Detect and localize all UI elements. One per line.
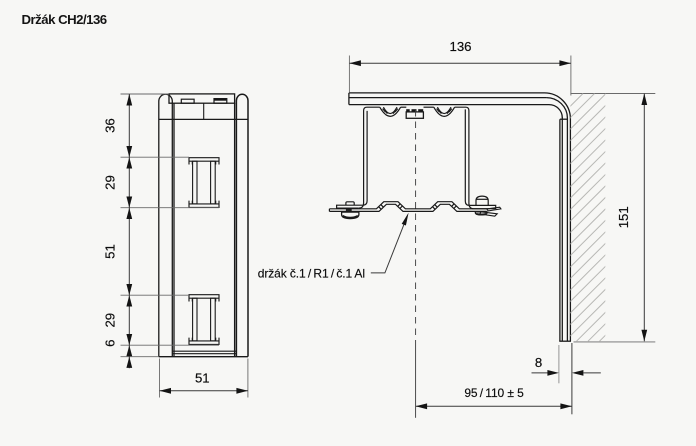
- svg-text:36: 36: [103, 118, 118, 133]
- svg-text:29: 29: [103, 313, 118, 328]
- svg-text:6: 6: [103, 340, 118, 347]
- svg-text:151: 151: [616, 206, 631, 228]
- svg-text:držák č.1 / R1 / č.1 Al: držák č.1 / R1 / č.1 Al: [258, 267, 365, 281]
- svg-text:8: 8: [535, 355, 542, 370]
- svg-text:95 / 110 ± 5: 95 / 110 ± 5: [464, 386, 524, 400]
- svg-text:51: 51: [103, 244, 118, 259]
- svg-text:29: 29: [103, 175, 118, 190]
- svg-text:Držák CH2/136: Držák CH2/136: [22, 12, 107, 27]
- svg-text:136: 136: [449, 39, 471, 54]
- svg-text:51: 51: [195, 371, 210, 386]
